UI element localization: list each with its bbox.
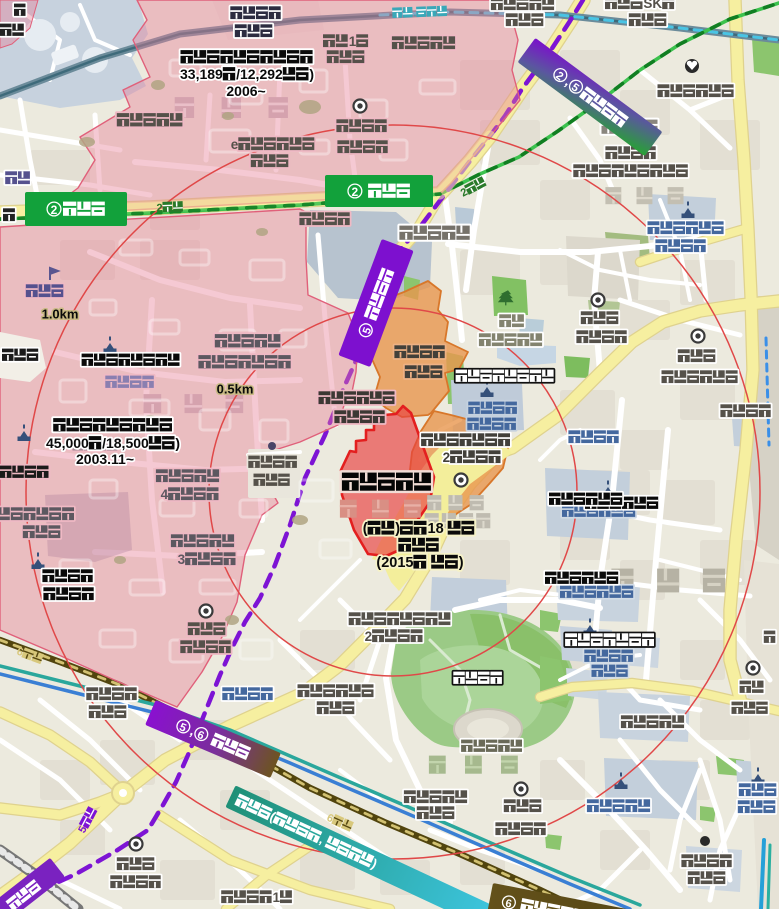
svg-text:/12,292: /12,292	[236, 66, 283, 82]
svg-text:1: 1	[349, 34, 357, 49]
svg-text:.: .	[413, 7, 416, 19]
svg-text:2: 2	[156, 202, 163, 214]
svg-text:e: e	[231, 137, 239, 152]
svg-text:4: 4	[161, 487, 169, 502]
svg-text:2: 2	[51, 203, 58, 217]
svg-text:2: 2	[365, 629, 373, 644]
svg-text:): )	[309, 66, 314, 82]
svg-text:3: 3	[178, 552, 186, 567]
svg-text:2006~: 2006~	[226, 83, 265, 99]
svg-text:): )	[175, 435, 180, 451]
svg-text:2003.11~: 2003.11~	[76, 451, 134, 467]
svg-text:45,000: 45,000	[46, 435, 89, 451]
svg-text:): )	[395, 521, 400, 537]
svg-text:1: 1	[273, 890, 281, 905]
svg-text:2: 2	[443, 450, 451, 465]
svg-text:): )	[459, 555, 464, 571]
svg-text:1.0km: 1.0km	[42, 307, 79, 322]
svg-text:18: 18	[428, 521, 444, 537]
svg-text:(: (	[363, 521, 368, 537]
svg-text:2: 2	[352, 185, 359, 199]
svg-text:(2015: (2015	[376, 555, 413, 571]
svg-text:SK: SK	[643, 0, 662, 11]
svg-text:0.5km: 0.5km	[217, 382, 254, 397]
svg-text:/18,500: /18,500	[102, 435, 149, 451]
svg-text:33,189: 33,189	[180, 66, 223, 82]
